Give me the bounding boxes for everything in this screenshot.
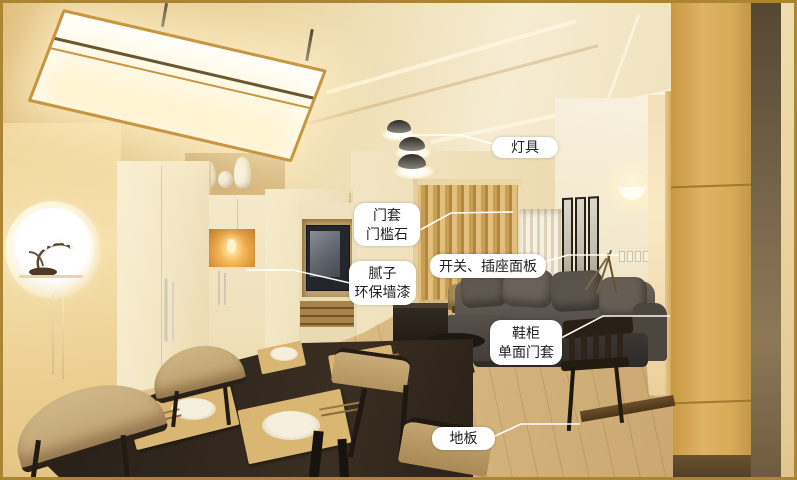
label-switch-socket: 开关、插座面板 [430, 254, 546, 278]
label-door-frame: 门套 门槛石 [354, 203, 420, 246]
label-shoe-cabinet: 鞋柜 单面门套 [490, 320, 562, 365]
mid-cabinet-handle-2 [224, 273, 226, 305]
niche-shelf [19, 275, 83, 278]
wardrobe-handle-1 [165, 279, 167, 341]
wall-art-triptych [562, 196, 603, 275]
track-light-1 [387, 120, 411, 133]
vase-3 [234, 157, 251, 188]
bonsai-plant [17, 226, 79, 278]
shoe-cabinet-kick [671, 455, 751, 480]
plate-2 [270, 347, 298, 361]
tv-bench [300, 301, 354, 327]
wardrobe-seam [161, 165, 162, 390]
shoe-cabinet [671, 3, 751, 480]
plate-4 [262, 411, 320, 440]
label-lighting: 灯具 [492, 137, 558, 158]
vase-2 [218, 171, 233, 188]
track-light-3 [398, 154, 426, 169]
tv-screen-image [310, 231, 340, 277]
niche-lamp [227, 239, 236, 253]
art-panel-3 [588, 196, 599, 274]
label-floor: 地板 [432, 427, 495, 450]
annotated-room-photo: 灯具 门套 门槛石 开关、插座面板 腻子 环保墙漆 鞋柜 单面门套 地板 [0, 0, 797, 480]
mid-cabinet-handle-1 [218, 271, 220, 305]
console-leg-1 [52, 295, 54, 375]
wardrobe-handle-2 [172, 282, 174, 340]
label-putty-paint: 腻子 环保墙漆 [349, 261, 416, 305]
pendant-light-trim-gold [51, 47, 310, 108]
socket-panel-3 [635, 251, 641, 262]
console-leg-2 [62, 295, 64, 379]
track-light-2 [399, 137, 425, 151]
socket-panel-2 [627, 251, 633, 262]
art-panel-2 [575, 197, 586, 275]
art-panel-1 [562, 197, 573, 275]
socket-panel-1 [619, 251, 625, 262]
right-edge-wall [781, 3, 797, 480]
cabinet-side-panel [751, 3, 781, 480]
